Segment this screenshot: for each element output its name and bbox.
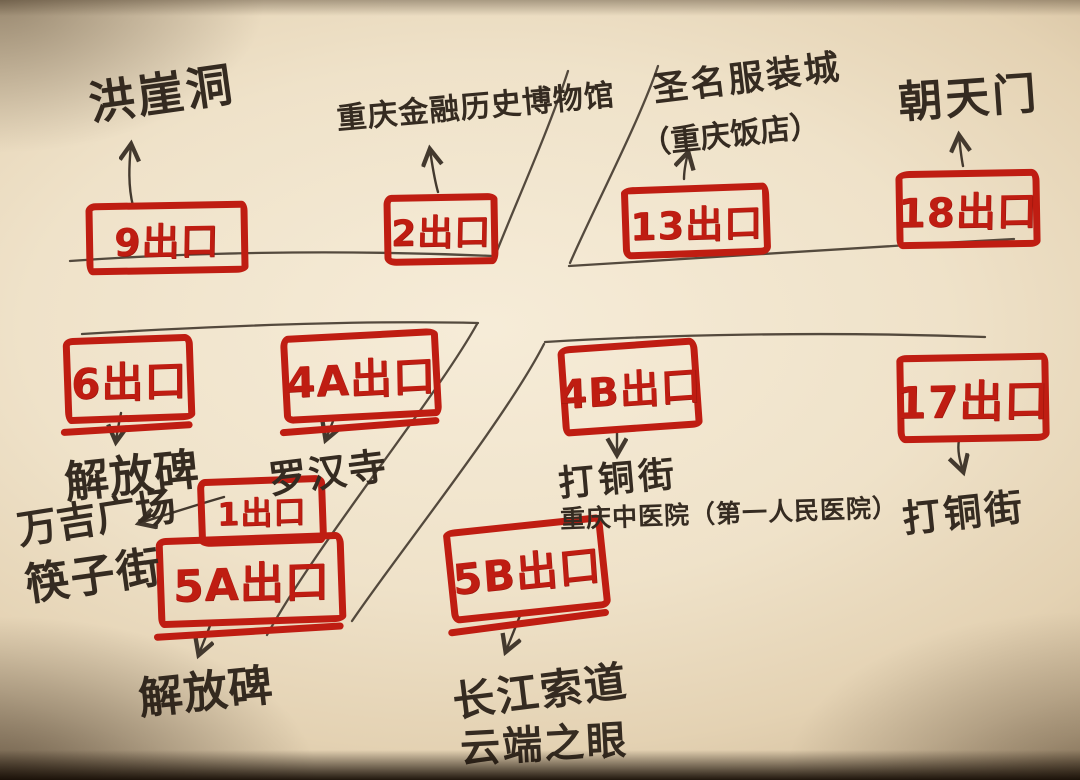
exit-label-5a: 5A出口 — [173, 545, 330, 615]
arrow-exit17-to-datongjie — [958, 440, 963, 471]
exit-box-2: 2出口 — [383, 193, 498, 266]
exit-box-17: 17出口 — [896, 353, 1050, 444]
exit-label-13: 13出口 — [630, 191, 763, 251]
exit-label-2: 2出口 — [391, 203, 492, 257]
arrow-exit5b-to-changjiangsuodao — [506, 613, 521, 651]
exit-box-5a: 5A出口 — [155, 532, 346, 629]
exit-box-13: 13出口 — [621, 182, 771, 259]
arrow-exit18-to-chaotianmen — [959, 136, 963, 166]
exit-label-17: 17出口 — [896, 365, 1050, 432]
photo-of-hand-drawn-exit-map: 9出口 2出口 13出口 18出口 6出口 4A出口 4B出口 17出口 1出口… — [0, 0, 1080, 780]
exit-label-5b: 5B出口 — [451, 531, 604, 607]
arrow-exit9-to-hongyadong — [129, 145, 133, 206]
exit-box-9: 9出口 — [85, 201, 248, 276]
exit-label-4b: 4B出口 — [558, 353, 702, 421]
exit-box-4a: 4A出口 — [280, 328, 442, 424]
exit-label-4a: 4A出口 — [286, 342, 437, 411]
road-second-right — [545, 334, 985, 342]
arrow-exit2-to-museum — [430, 150, 438, 192]
exit-box-4b: 4B出口 — [557, 337, 703, 437]
arrow-exit5a-to-jiefangbei — [199, 623, 211, 654]
destination-chaotianmen: 朝天门 — [896, 57, 1041, 131]
exit-box-18: 18出口 — [895, 169, 1040, 250]
exit-label-6: 6出口 — [71, 346, 187, 411]
exit-box-6: 6出口 — [63, 334, 196, 424]
destination-yunduan-zhiyan: 云端之眼 — [459, 708, 630, 775]
exit-label-9: 9出口 — [114, 210, 220, 267]
exit-label-18: 18出口 — [898, 179, 1039, 239]
